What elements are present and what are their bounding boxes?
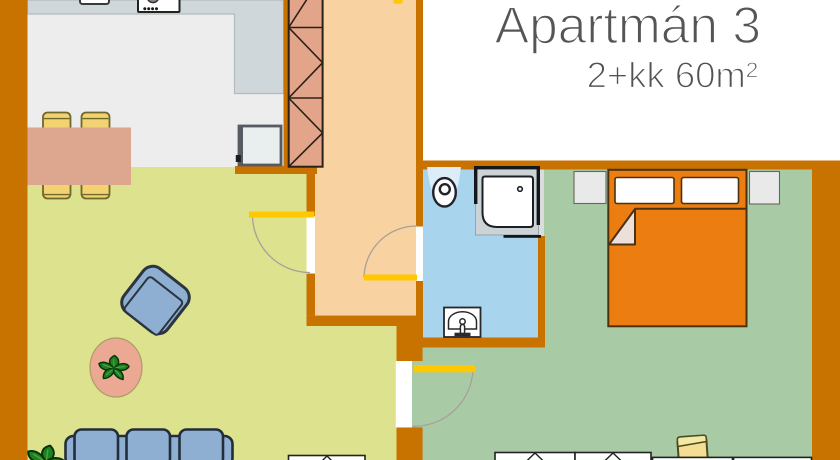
svg-text:2+kk 60m²: 2+kk 60m²	[587, 55, 758, 96]
svg-text:Apartmán 3: Apartmán 3	[495, 0, 761, 54]
